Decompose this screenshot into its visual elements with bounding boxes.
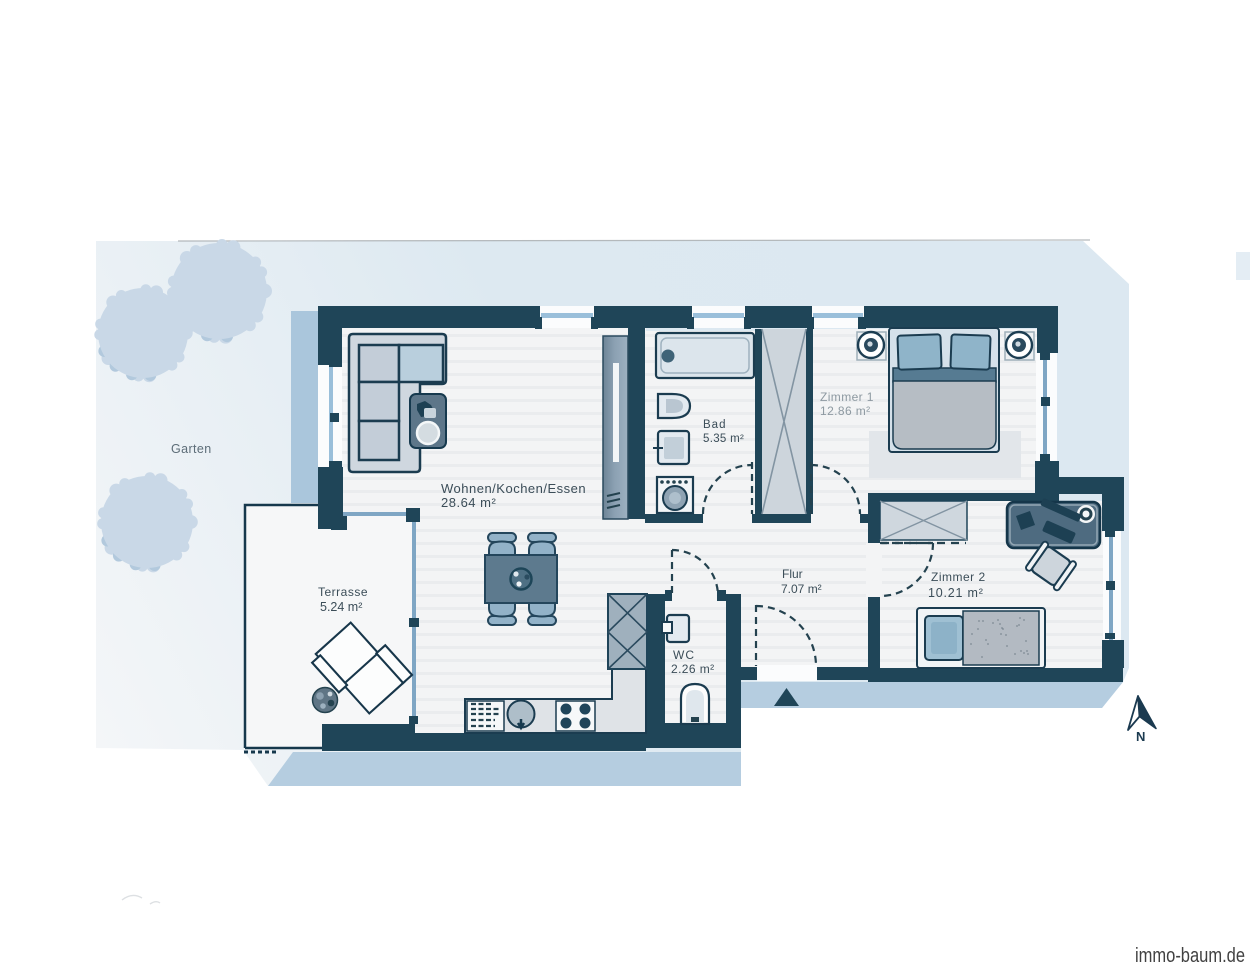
svg-text:10.21 m²: 10.21 m²	[928, 586, 984, 600]
svg-text:Zimmer 1: Zimmer 1	[820, 390, 874, 404]
svg-text:12.86 m²: 12.86 m²	[820, 404, 871, 418]
svg-text:N: N	[1136, 729, 1145, 744]
svg-text:Bad: Bad	[703, 419, 726, 431]
svg-text:5.24 m²: 5.24 m²	[320, 600, 362, 614]
svg-text:5.35 m²: 5.35 m²	[703, 433, 744, 445]
svg-text:28.64 m²: 28.64 m²	[441, 495, 496, 510]
svg-text:WC: WC	[673, 648, 695, 662]
svg-text:immo-baum.de: immo-baum.de	[1135, 945, 1245, 967]
svg-text:Garten: Garten	[171, 442, 212, 456]
svg-text:7.07 m²: 7.07 m²	[781, 582, 822, 596]
svg-text:2.26 m²: 2.26 m²	[671, 662, 714, 676]
svg-text:Wohnen/Kochen/Essen: Wohnen/Kochen/Essen	[441, 481, 586, 496]
svg-text:Zimmer 2: Zimmer 2	[931, 570, 986, 584]
svg-text:Terrasse: Terrasse	[318, 585, 368, 599]
svg-text:Flur: Flur	[782, 567, 803, 581]
